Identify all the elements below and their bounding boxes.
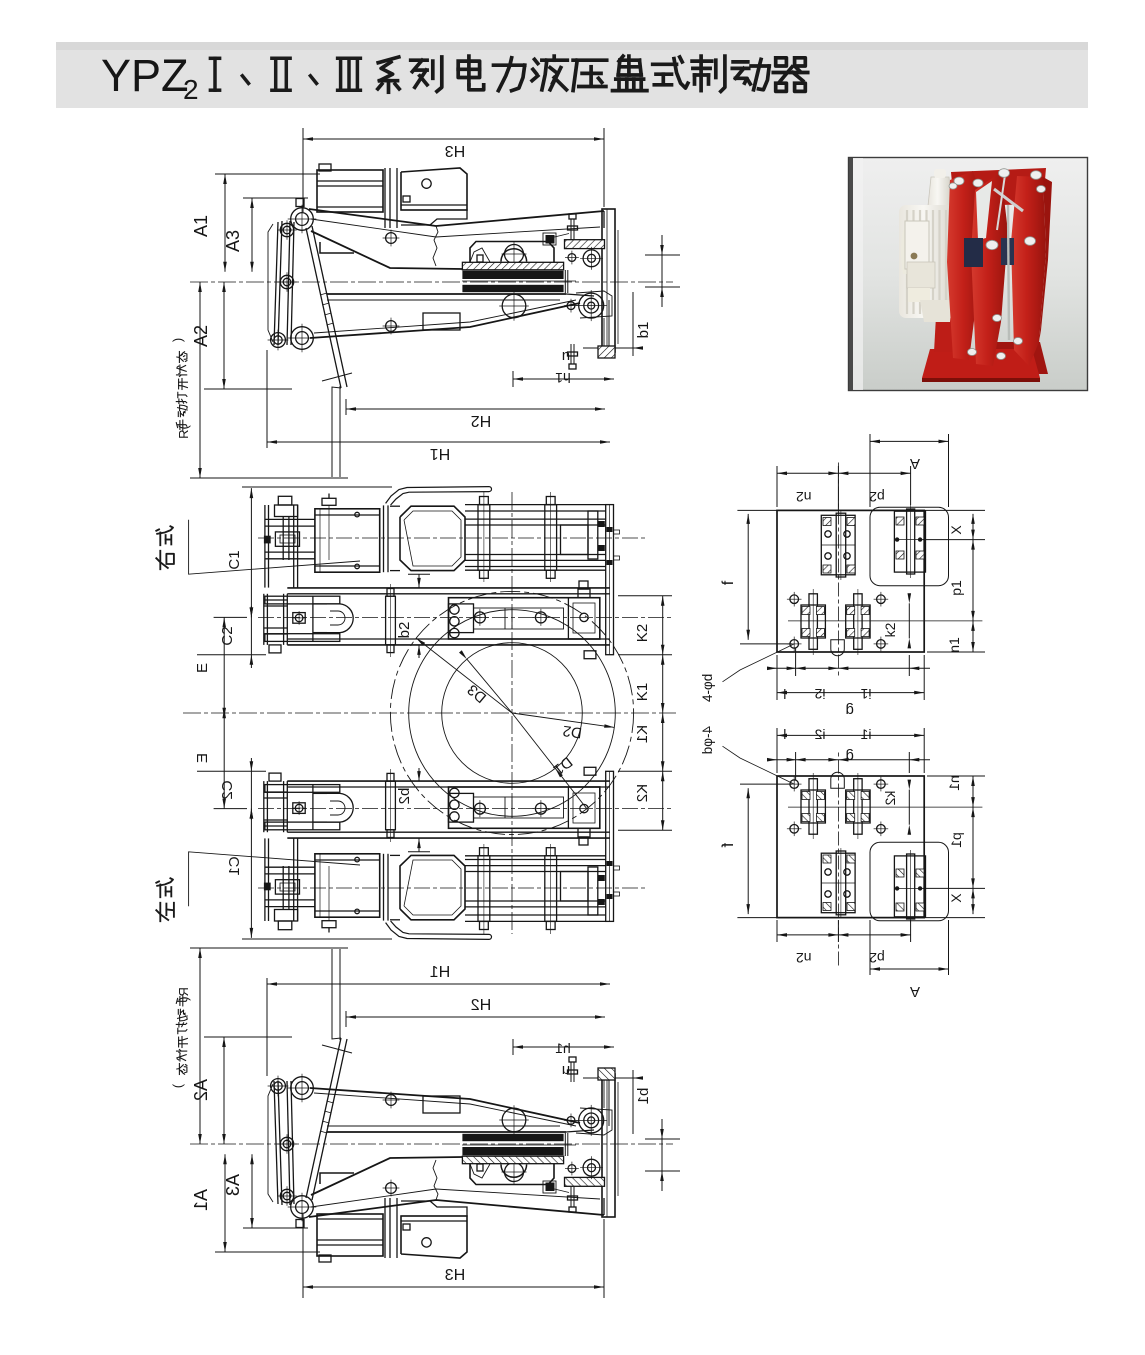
svg-text:h1: h1 bbox=[555, 370, 571, 386]
svg-text:2: 2 bbox=[183, 74, 199, 105]
svg-text:g: g bbox=[846, 748, 854, 765]
svg-text:i2: i2 bbox=[814, 686, 825, 702]
svg-text:A: A bbox=[910, 983, 920, 1000]
svg-text:k2: k2 bbox=[882, 622, 898, 637]
svg-text:p1: p1 bbox=[948, 580, 964, 596]
svg-text:A1: A1 bbox=[191, 215, 211, 237]
svg-text:): ) bbox=[170, 338, 185, 342]
svg-text:C1: C1 bbox=[226, 550, 243, 569]
svg-text:A3: A3 bbox=[223, 230, 243, 252]
svg-text:H2: H2 bbox=[471, 412, 492, 429]
svg-text:p2: p2 bbox=[869, 950, 885, 966]
svg-text:H3: H3 bbox=[445, 142, 466, 159]
svg-text:n2: n2 bbox=[796, 950, 812, 966]
svg-text:K1: K1 bbox=[634, 683, 651, 701]
svg-text:R(: R( bbox=[176, 424, 191, 438]
svg-text:f: f bbox=[720, 580, 737, 585]
svg-text:X: X bbox=[948, 525, 964, 535]
svg-text:D3: D3 bbox=[464, 681, 490, 706]
svg-text:g: g bbox=[846, 702, 854, 719]
svg-text:E: E bbox=[194, 663, 211, 673]
svg-text:C2: C2 bbox=[219, 626, 236, 645]
svg-text:4-φd: 4-φd bbox=[700, 674, 715, 702]
svg-text:D1: D1 bbox=[550, 753, 576, 778]
svg-text:i1: i1 bbox=[860, 686, 871, 702]
svg-text:n2: n2 bbox=[796, 489, 812, 505]
svg-text:p2: p2 bbox=[869, 489, 885, 505]
svg-text:b2: b2 bbox=[396, 622, 413, 639]
svg-text:K2: K2 bbox=[634, 624, 651, 642]
svg-text:A: A bbox=[910, 455, 920, 472]
svg-text:H1: H1 bbox=[430, 445, 451, 462]
svg-text:b1: b1 bbox=[635, 322, 652, 339]
svg-text:A2: A2 bbox=[191, 325, 211, 347]
svg-text:YPZ: YPZ bbox=[101, 50, 189, 101]
svg-text:n1: n1 bbox=[946, 637, 962, 653]
svg-text:D2: D2 bbox=[562, 722, 583, 742]
